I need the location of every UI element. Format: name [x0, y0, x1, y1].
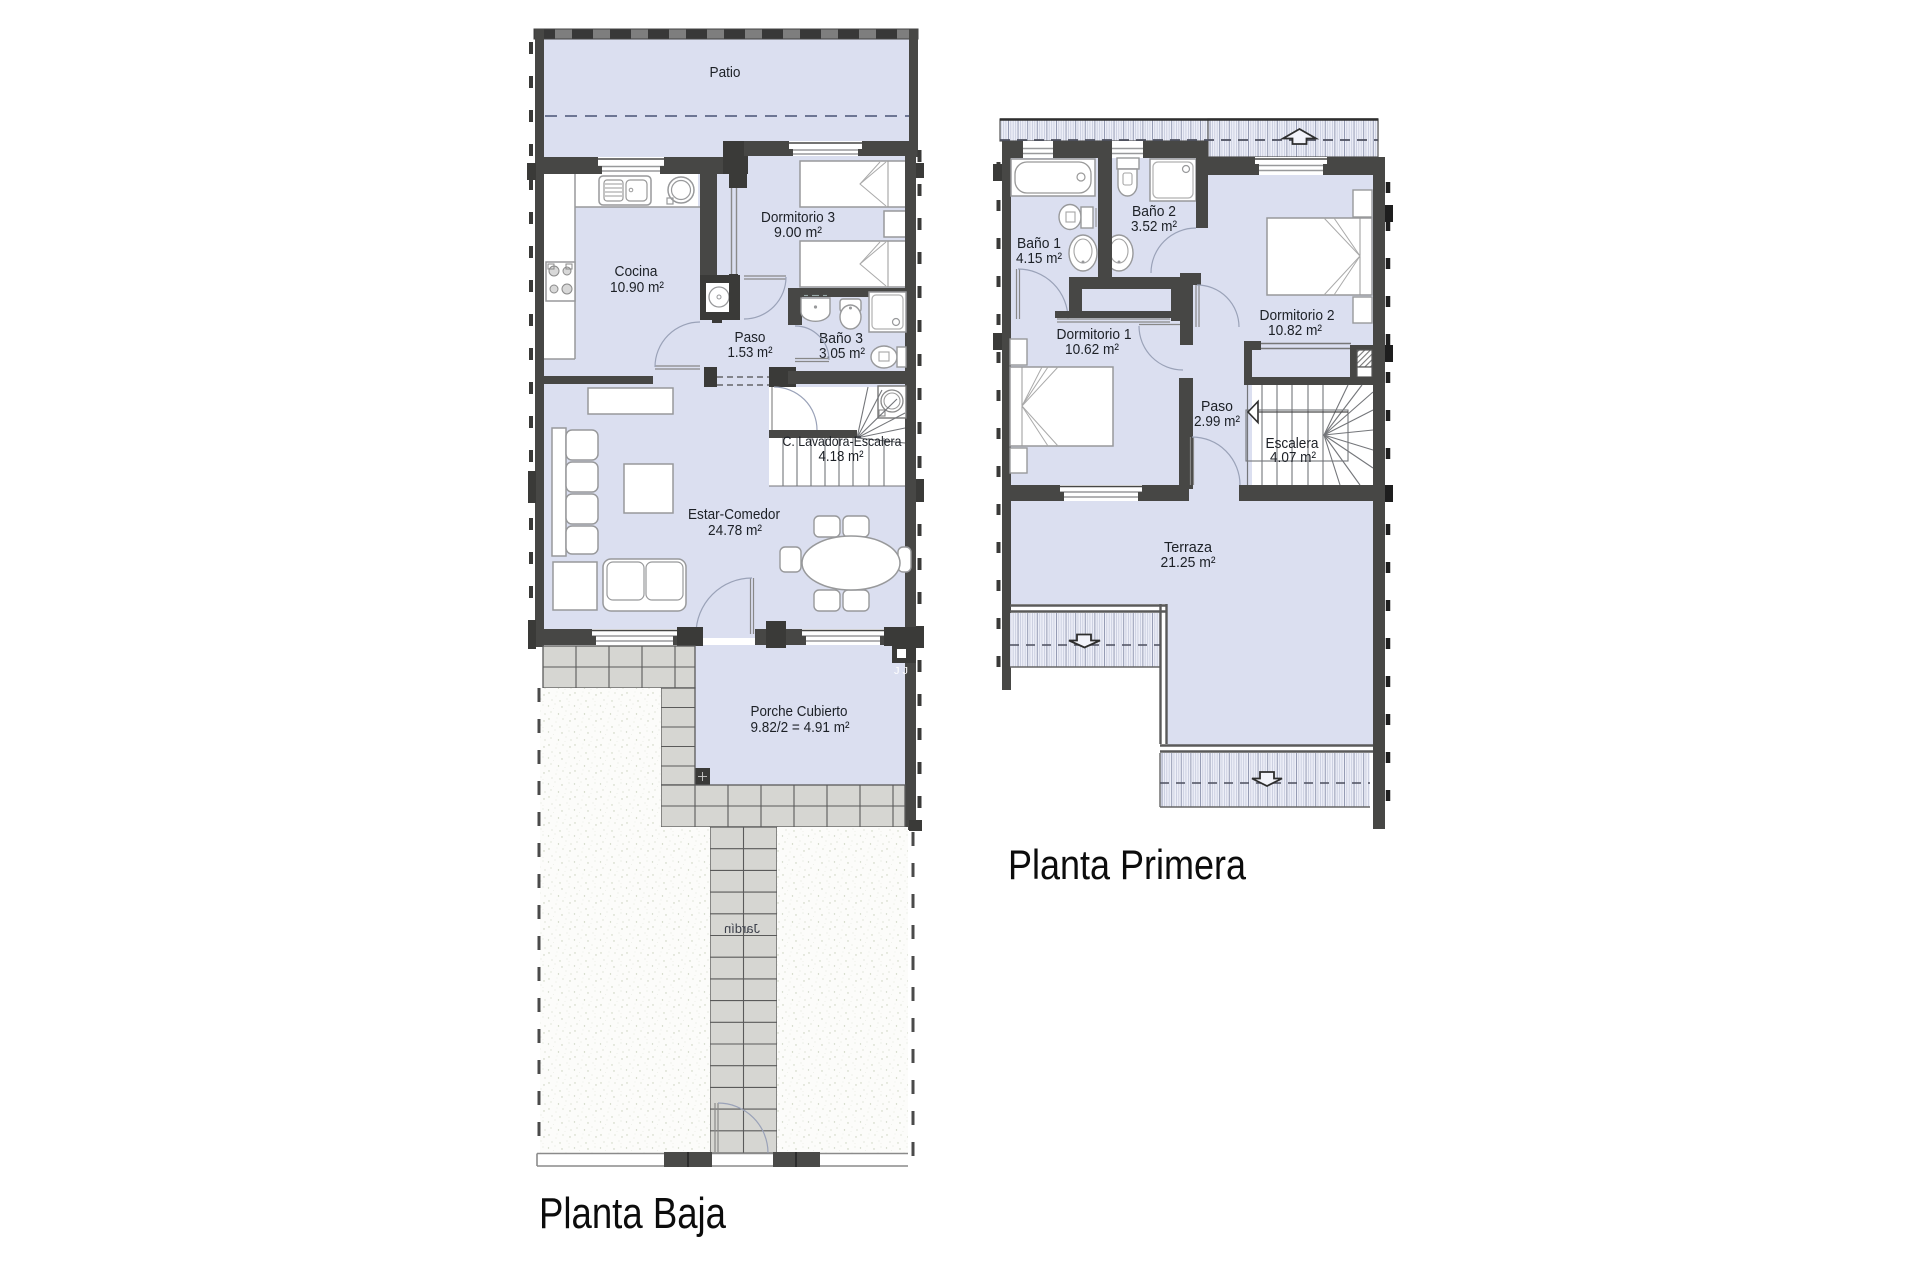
- svg-text:9.00 m²: 9.00 m²: [774, 224, 822, 241]
- svg-text:2.99 m²: 2.99 m²: [1194, 413, 1240, 430]
- svg-text:Cocina: Cocina: [615, 263, 659, 280]
- svg-text:J J: J J: [894, 666, 908, 677]
- svg-text:Patio: Patio: [710, 64, 741, 81]
- svg-text:C. Lavadora-Escalera: C. Lavadora-Escalera: [783, 433, 902, 449]
- svg-text:10.62 m²: 10.62 m²: [1065, 341, 1119, 358]
- svg-text:10.82 m²: 10.82 m²: [1268, 322, 1322, 339]
- svg-text:4.07 m²: 4.07 m²: [1270, 449, 1316, 466]
- svg-text:Porche Cubierto: Porche Cubierto: [751, 703, 848, 720]
- svg-text:9.82/2 = 4.91 m²: 9.82/2 = 4.91 m²: [751, 719, 850, 736]
- svg-text:4.15 m²: 4.15 m²: [1016, 250, 1062, 267]
- svg-text:1.53 m²: 1.53 m²: [728, 344, 773, 361]
- svg-text:Estar-Comedor: Estar-Comedor: [688, 506, 780, 523]
- svg-text:21.25 m²: 21.25 m²: [1161, 554, 1216, 571]
- svg-text:3.05 m²: 3.05 m²: [819, 345, 865, 362]
- svg-text:Jardín: Jardín: [724, 921, 760, 936]
- svg-text:24.78 m²: 24.78 m²: [708, 522, 762, 539]
- svg-text:Planta Primera: Planta Primera: [1008, 841, 1247, 888]
- svg-text:3.52 m²: 3.52 m²: [1131, 218, 1177, 235]
- svg-text:4.18 m²: 4.18 m²: [819, 448, 864, 465]
- svg-text:10.90 m²: 10.90 m²: [610, 279, 664, 296]
- svg-text:Planta Baja: Planta Baja: [539, 1189, 726, 1238]
